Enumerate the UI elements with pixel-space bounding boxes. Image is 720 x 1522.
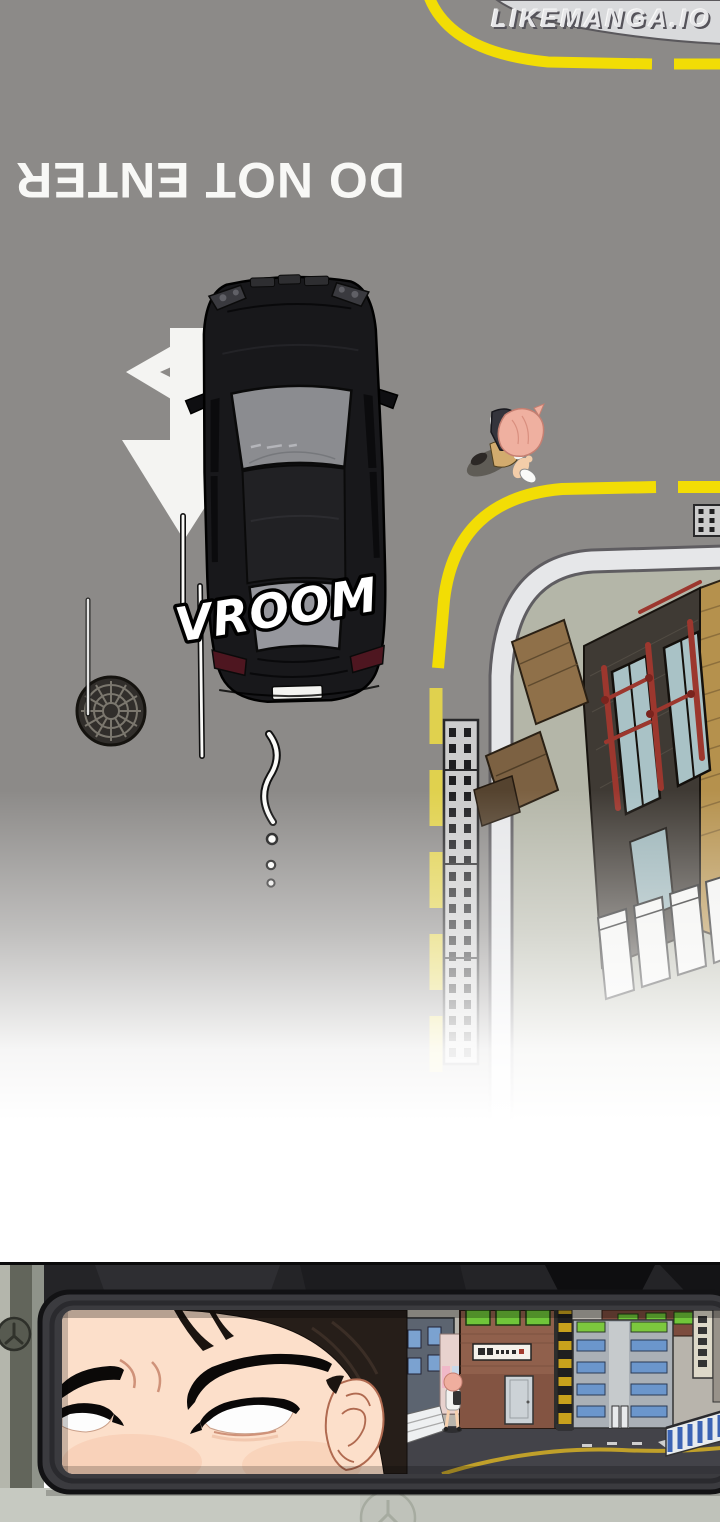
- comic-page: DO NOT ENTER: [0, 0, 720, 1522]
- mirror-vertical-sign: [693, 1310, 713, 1378]
- panel-fade-overlay: [0, 790, 720, 1262]
- site-watermark: LIKEMANGA.IO: [491, 5, 712, 34]
- driver-face: [62, 1310, 407, 1490]
- car-windshield: [231, 384, 353, 469]
- mirror-apartment: [573, 1320, 673, 1428]
- panel-rearview-mirror: [0, 1262, 720, 1522]
- road-marking-do-not-enter: DO NOT ENTER: [15, 152, 405, 208]
- mirror-striped-pole: [556, 1310, 574, 1430]
- mirror-shop-sign: [473, 1344, 531, 1360]
- windshield-left-strip: [0, 1265, 44, 1522]
- mirror-shop-door: [505, 1376, 533, 1424]
- mirror-brick-building: [460, 1310, 558, 1428]
- mirror-street-scene: [392, 1310, 720, 1474]
- drain-grate-small: [694, 505, 720, 536]
- car-roof: [242, 464, 347, 583]
- mirror-glass: [62, 1310, 720, 1490]
- panel-street-overhead: DO NOT ENTER: [0, 0, 720, 1262]
- wall-emblem-icon: [0, 1318, 30, 1350]
- car-license-plate: [272, 685, 322, 699]
